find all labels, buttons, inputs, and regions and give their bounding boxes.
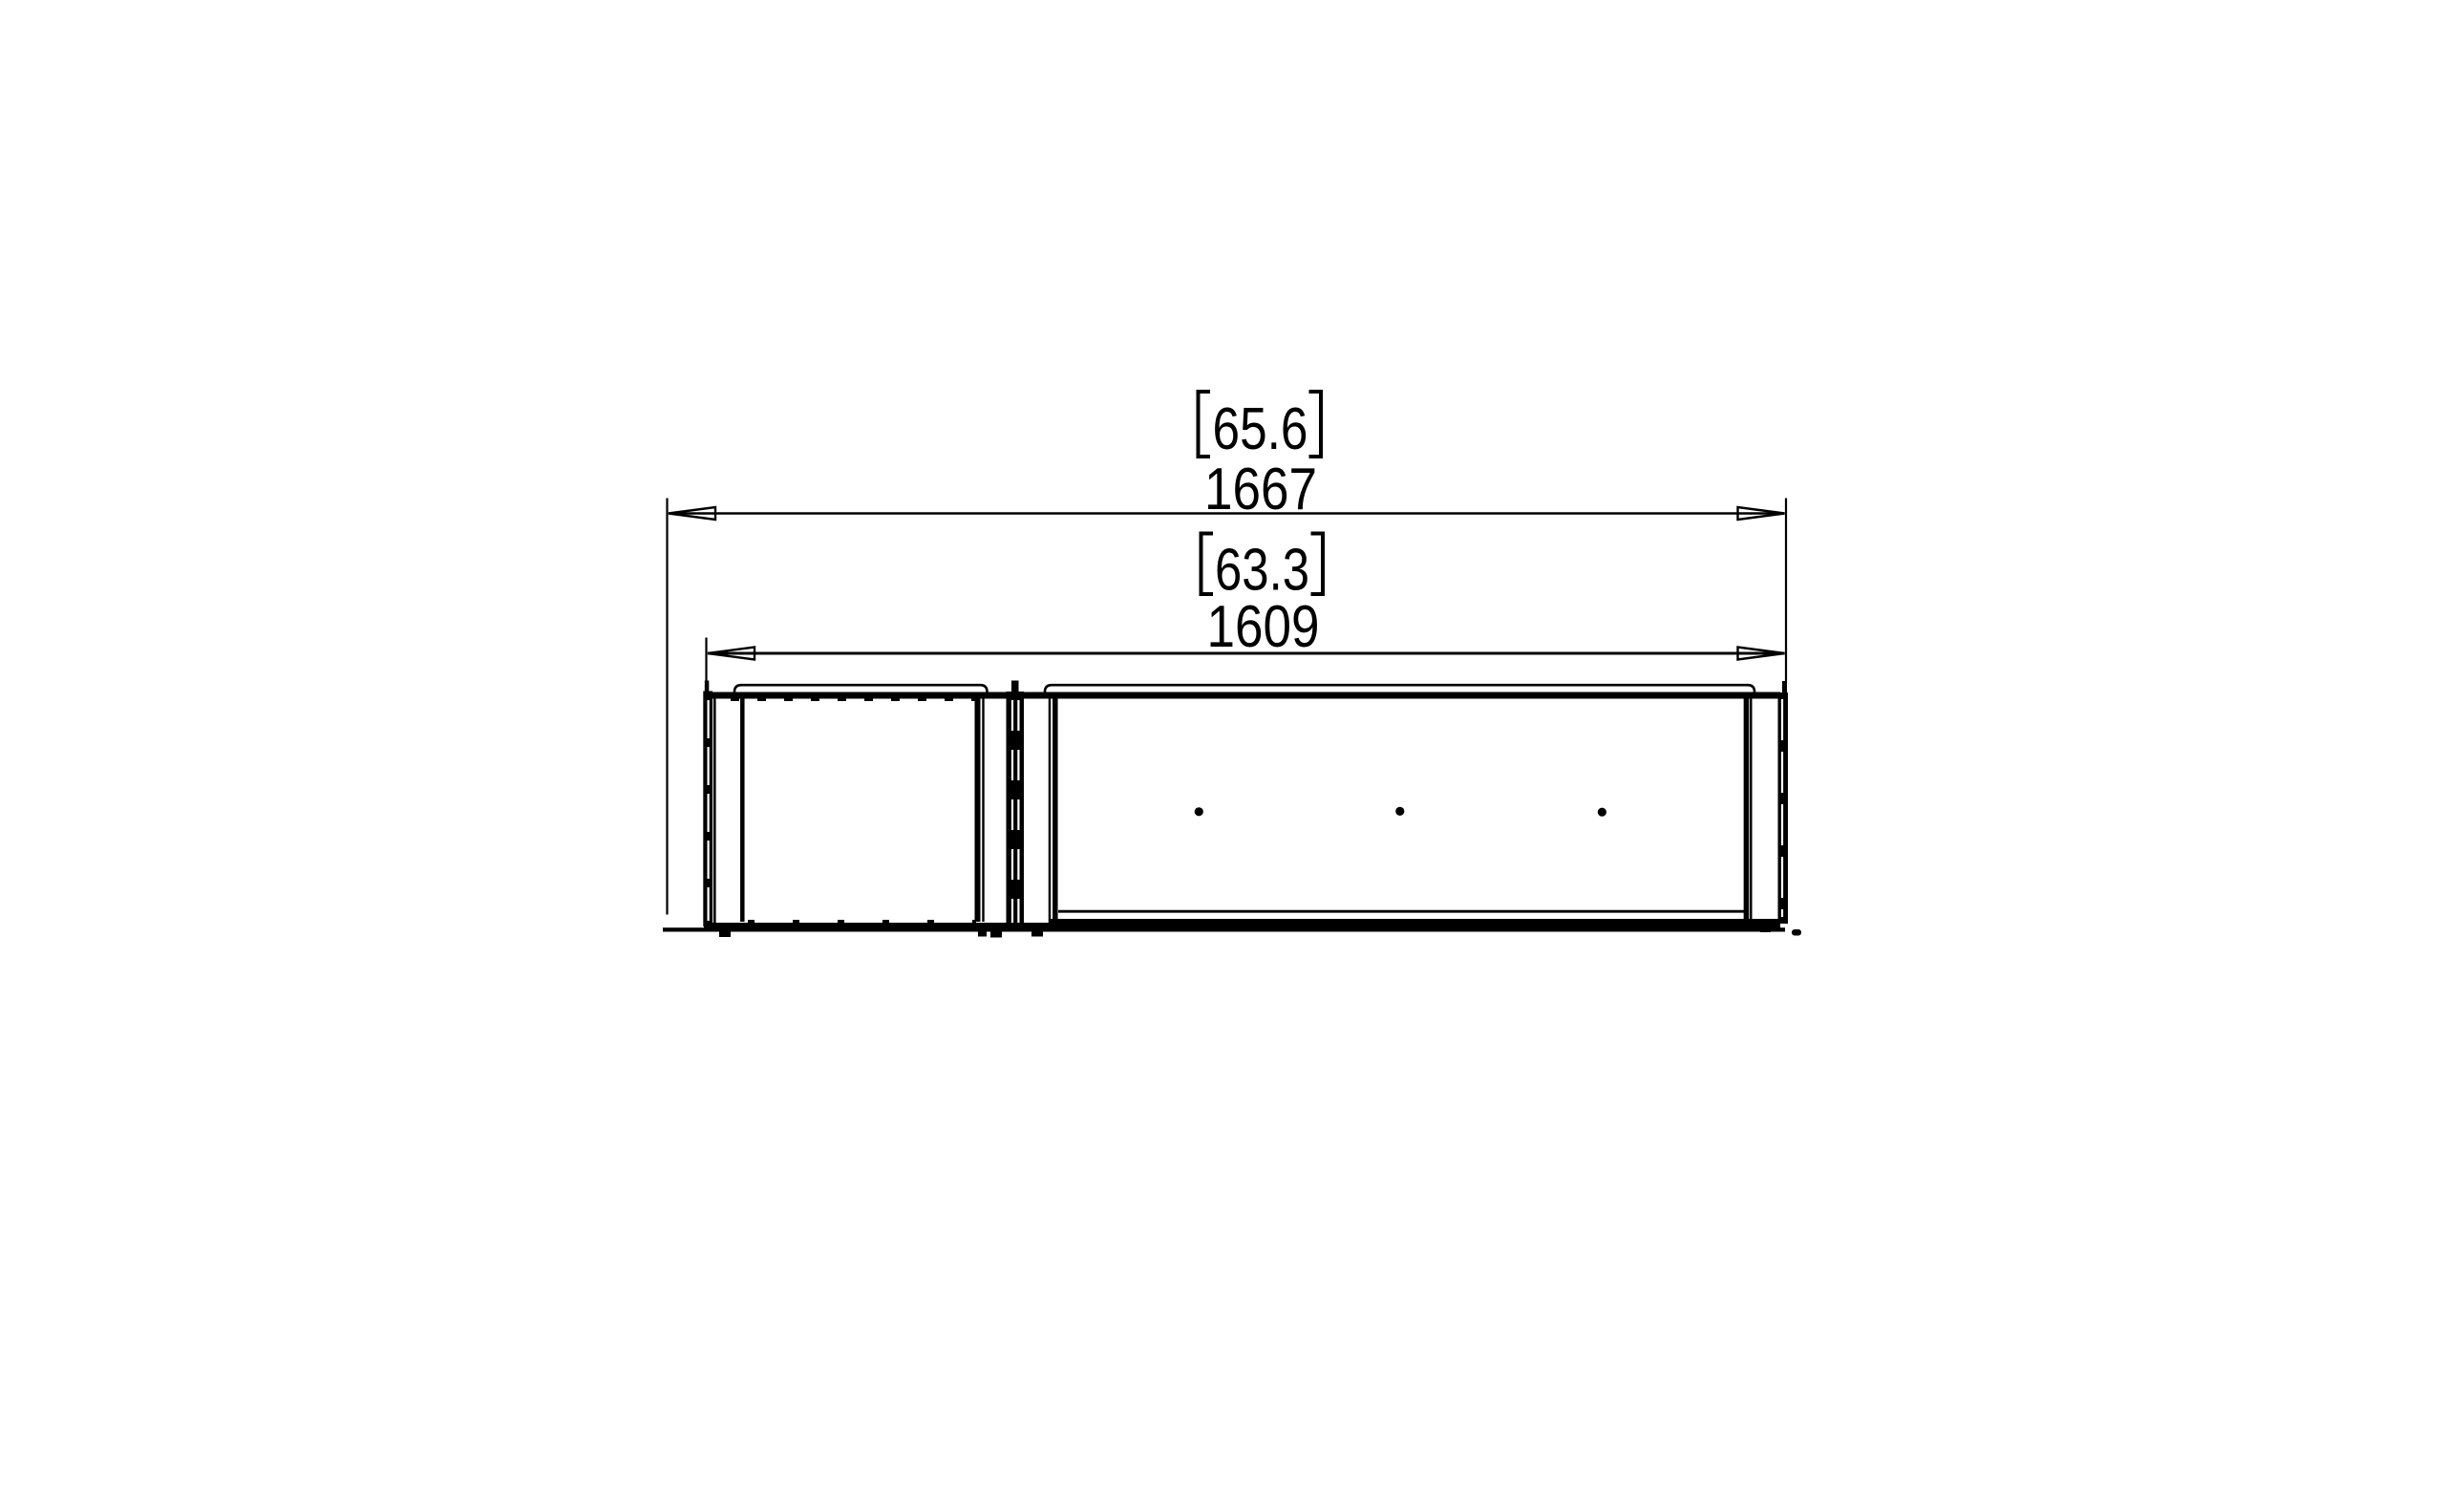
svg-text:65.6: 65.6 [1213, 395, 1308, 462]
svg-text:1609: 1609 [1207, 593, 1320, 660]
